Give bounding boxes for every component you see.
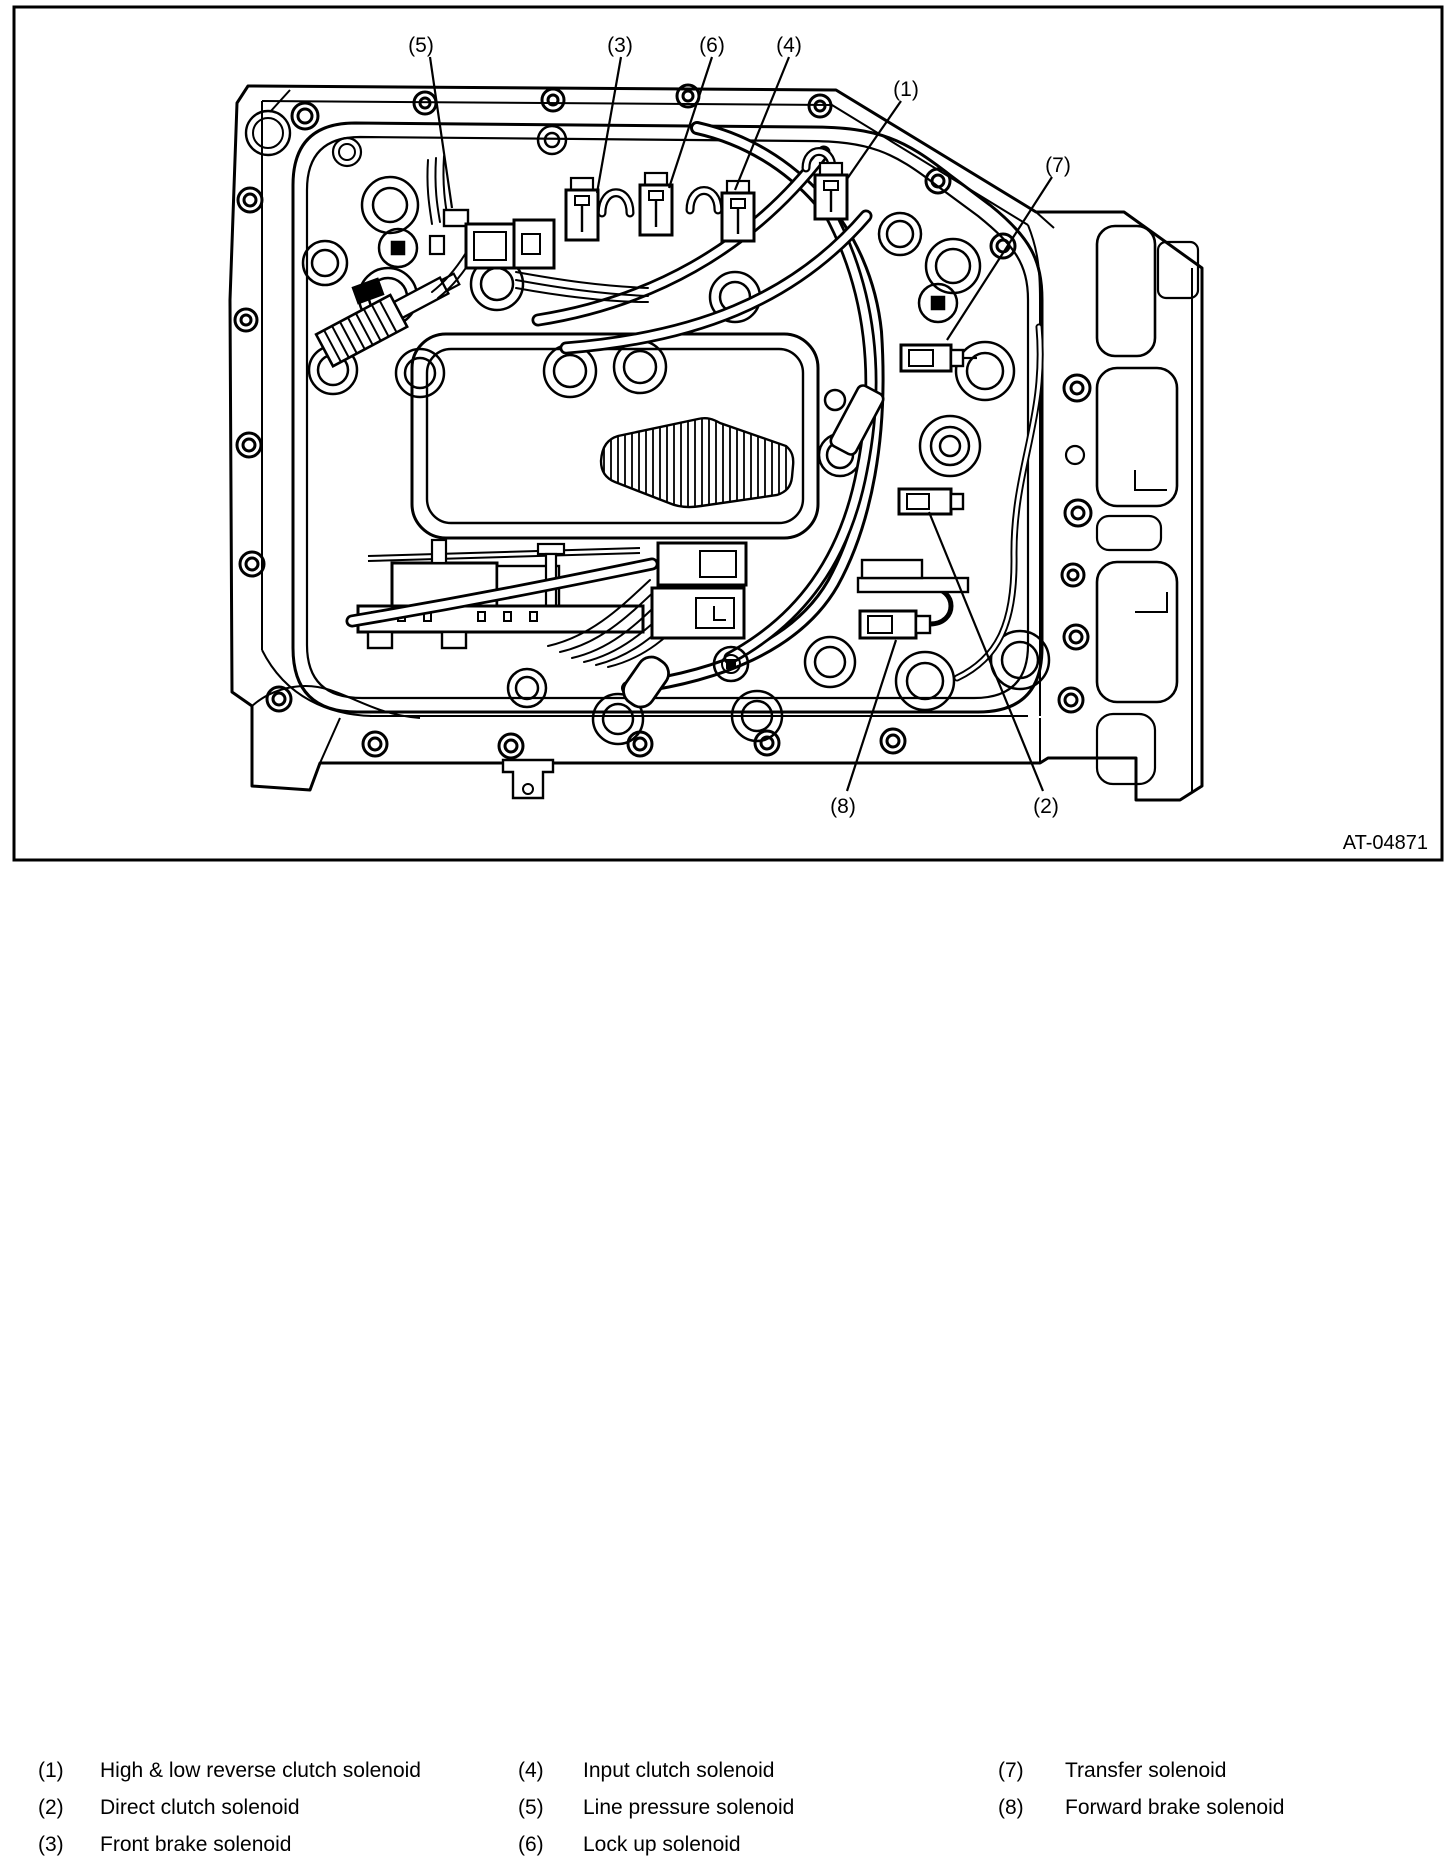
legend-label: Front brake solenoid — [100, 1833, 291, 1856]
legend-item-3: (3)Front brake solenoid — [38, 1833, 291, 1857]
legend-label: Line pressure solenoid — [583, 1796, 794, 1819]
lock-up-solenoid-connector — [640, 173, 672, 235]
legend-num: (2) — [38, 1796, 100, 1820]
legend-item-8: (8)Forward brake solenoid — [998, 1796, 1284, 1820]
manual-page: { "figure": { "reference_code": "AT-0487… — [0, 0, 1456, 1002]
legend-item-4: (4)Input clutch solenoid — [518, 1759, 774, 1783]
input-clutch-solenoid-connector — [722, 181, 754, 241]
legend-num: (4) — [518, 1759, 583, 1783]
legend-num: (8) — [998, 1796, 1065, 1820]
legend-item-7: (7)Transfer solenoid — [998, 1759, 1226, 1783]
valve-body-diagram: (5) (3) (6) (4) (1) (7) (8) (2) AT-04871 — [0, 0, 1456, 868]
legend: (1)High & low reverse clutch solenoid (2… — [0, 868, 1456, 1002]
callout-label-8: (8) — [830, 795, 856, 818]
transmission-valve-body-figure: (5) (3) (6) (4) (1) (7) (8) (2) AT-04871 — [0, 0, 1456, 868]
callout-label-7: (7) — [1045, 154, 1071, 177]
legend-label: Transfer solenoid — [1065, 1759, 1226, 1782]
legend-item-1: (1)High & low reverse clutch solenoid — [38, 1759, 421, 1783]
legend-label: Lock up solenoid — [583, 1833, 741, 1856]
legend-num: (7) — [998, 1759, 1065, 1783]
callout-label-1: (1) — [893, 78, 919, 101]
legend-num: (3) — [38, 1833, 100, 1857]
callout-label-4: (4) — [776, 34, 802, 57]
callout-label-2: (2) — [1033, 795, 1059, 818]
legend-num: (6) — [518, 1833, 583, 1857]
legend-label: Direct clutch solenoid — [100, 1796, 300, 1819]
figure-reference-code: AT-04871 — [1343, 832, 1428, 854]
legend-label: Input clutch solenoid — [583, 1759, 774, 1782]
legend-label: High & low reverse clutch solenoid — [100, 1759, 421, 1782]
legend-num: (1) — [38, 1759, 100, 1783]
callout-label-3: (3) — [607, 34, 633, 57]
callout-label-5: (5) — [408, 34, 434, 57]
high-low-reverse-solenoid-connector — [815, 163, 847, 219]
callout-label-6: (6) — [699, 34, 725, 57]
legend-item-6: (6)Lock up solenoid — [518, 1833, 741, 1857]
legend-label: Forward brake solenoid — [1065, 1796, 1284, 1819]
legend-item-5: (5)Line pressure solenoid — [518, 1796, 794, 1820]
legend-num: (5) — [518, 1796, 583, 1820]
legend-item-2: (2)Direct clutch solenoid — [38, 1796, 300, 1820]
front-brake-solenoid-connector — [566, 178, 598, 240]
